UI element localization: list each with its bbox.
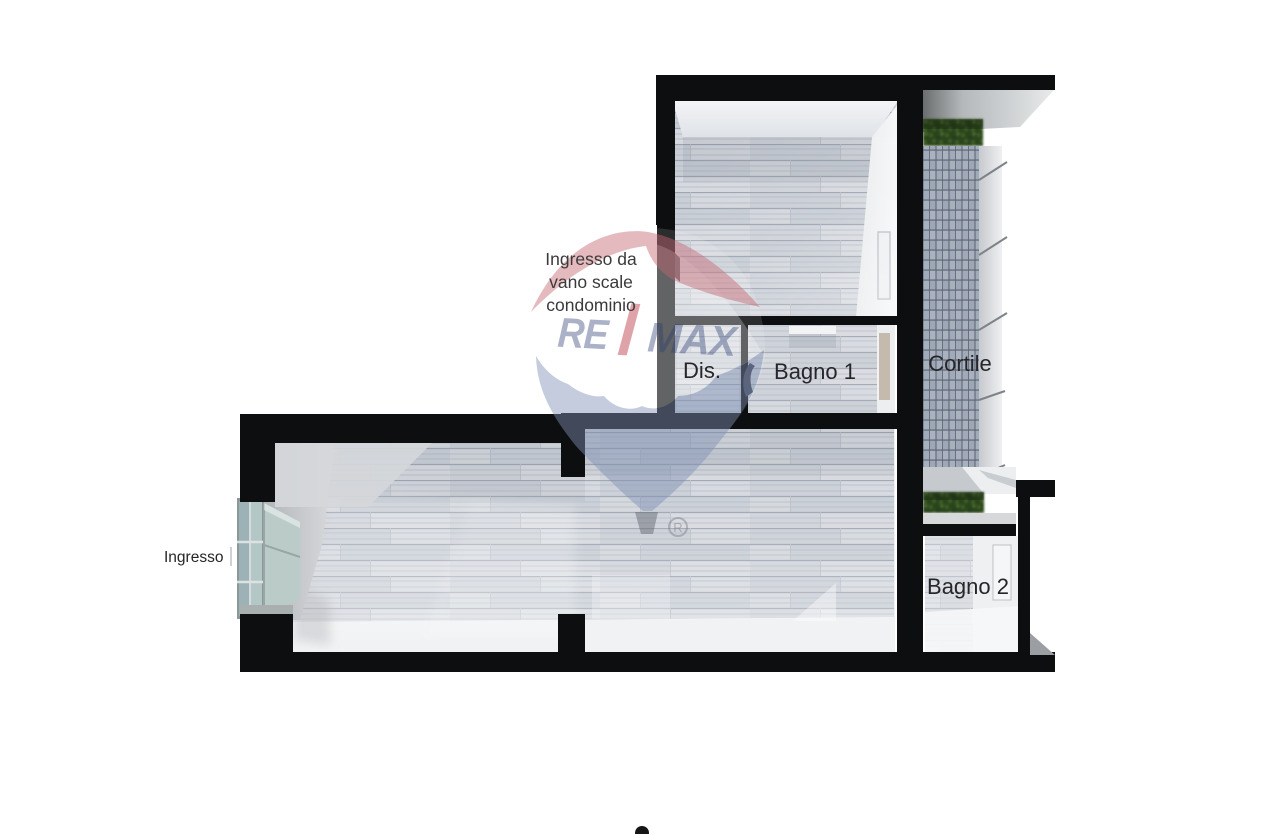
svg-text:Bagno 2: Bagno 2 (927, 574, 1009, 599)
svg-text:RE: RE (557, 309, 612, 359)
svg-text:Ingresso da: Ingresso da (545, 249, 637, 269)
svg-text:condominio: condominio (546, 295, 636, 315)
svg-text:Bagno 1: Bagno 1 (774, 359, 856, 384)
svg-text:Cortile: Cortile (928, 351, 992, 376)
svg-text:Ingresso: Ingresso (164, 549, 223, 566)
svg-text:R: R (673, 520, 682, 535)
svg-text:Dis.: Dis. (683, 358, 721, 383)
svg-text:vano scale: vano scale (549, 272, 633, 292)
